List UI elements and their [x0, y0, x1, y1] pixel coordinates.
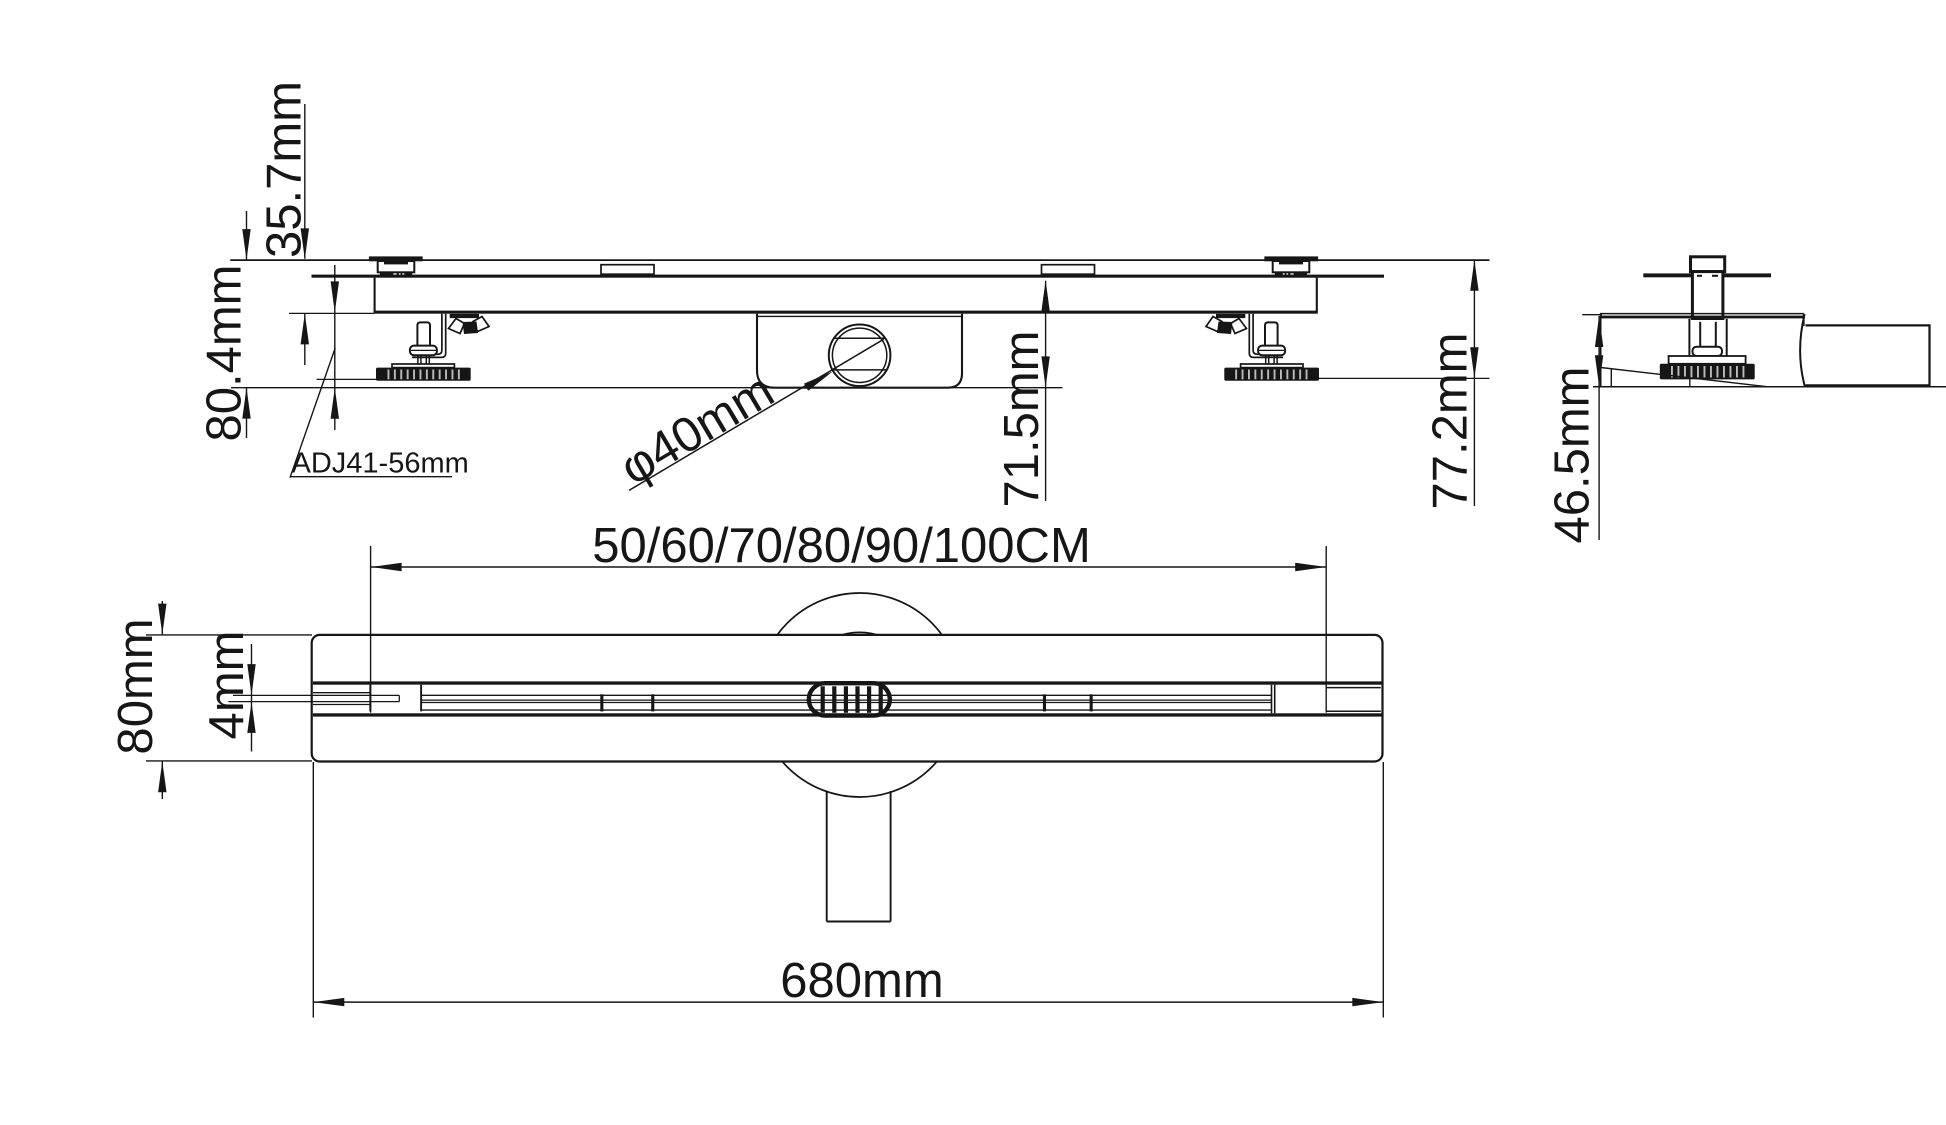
svg-text:4mm: 4mm [200, 631, 254, 740]
svg-text:71.5mm: 71.5mm [995, 330, 1049, 507]
svg-text:35.7mm: 35.7mm [258, 81, 312, 258]
svg-text:46.5mm: 46.5mm [1546, 366, 1600, 543]
svg-text:80.4mm: 80.4mm [198, 264, 252, 441]
svg-text:80mm: 80mm [109, 618, 163, 754]
svg-text:50/60/70/80/90/100CM: 50/60/70/80/90/100CM [592, 519, 1091, 573]
svg-text:ADJ41-56mm: ADJ41-56mm [292, 448, 469, 480]
svg-text:77.2mm: 77.2mm [1424, 332, 1478, 509]
svg-text:680mm: 680mm [780, 954, 943, 1008]
